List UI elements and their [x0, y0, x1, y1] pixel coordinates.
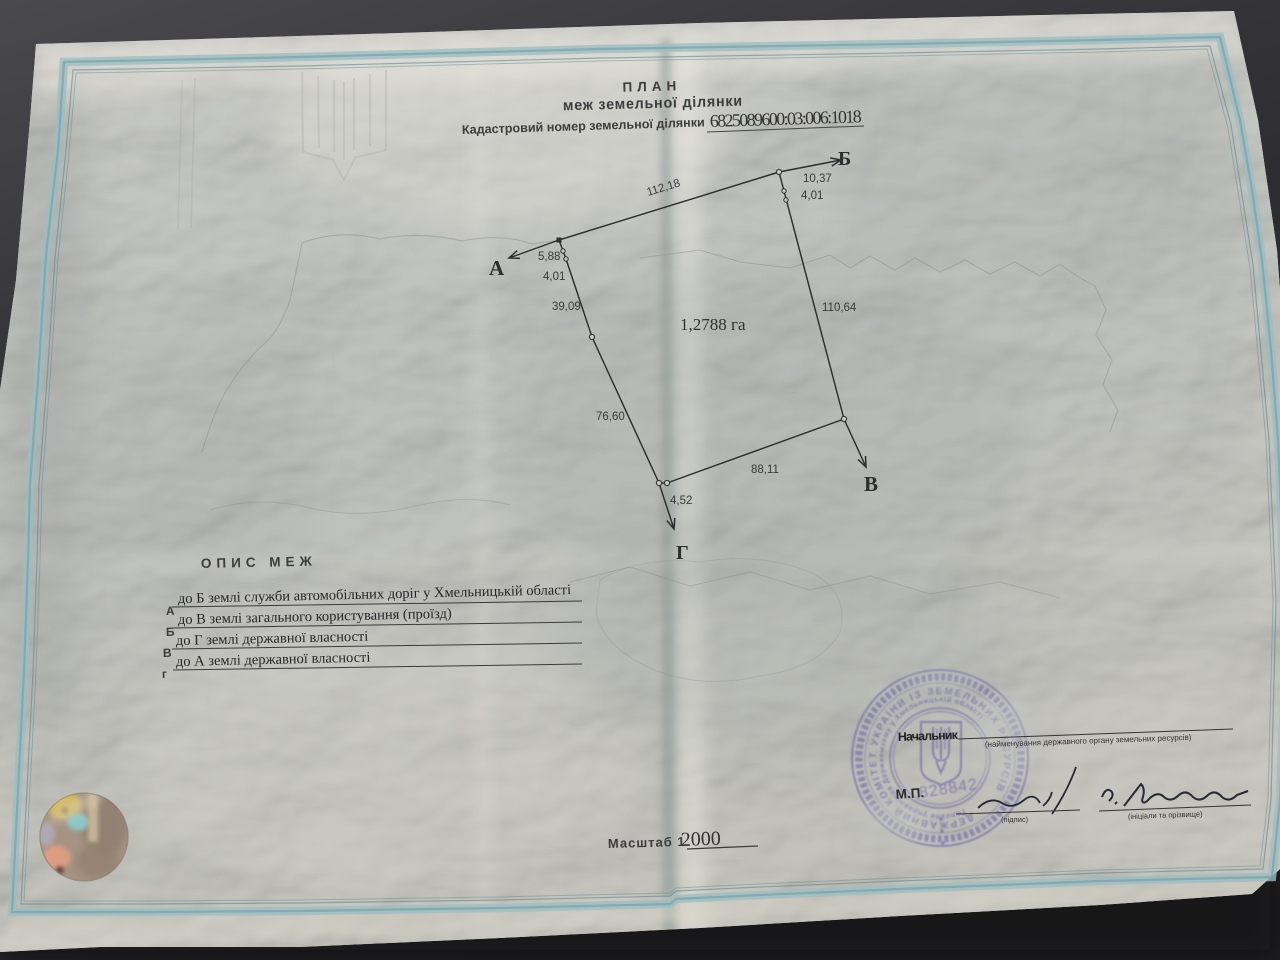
svg-text:4,52: 4,52 [670, 495, 692, 507]
svg-text:ОПИС МЕЖ: ОПИС МЕЖ [201, 554, 317, 571]
svg-text:Г: Г [676, 542, 689, 564]
svg-text:Масштаб 1: Масштаб 1 [608, 834, 686, 851]
svg-text:А: А [166, 604, 175, 618]
svg-text:110,64: 110,64 [822, 302, 857, 314]
svg-text:4,01: 4,01 [543, 271, 565, 283]
svg-text:4,01: 4,01 [801, 190, 823, 202]
svg-text:88,11: 88,11 [751, 464, 779, 476]
svg-text:(підпис): (підпис) [1001, 815, 1029, 824]
svg-text:Б: Б [166, 625, 175, 639]
svg-text:76,60: 76,60 [596, 411, 625, 423]
svg-text:М.П.: М.П. [895, 785, 924, 802]
svg-text:А: А [489, 256, 505, 280]
svg-text:Начальник: Начальник [898, 728, 959, 744]
svg-text:5,88: 5,88 [538, 251, 560, 263]
svg-text:1,2788 га: 1,2788 га [680, 315, 746, 334]
svg-text:ПЛАН: ПЛАН [622, 78, 681, 95]
svg-text:39,09: 39,09 [552, 301, 581, 313]
svg-text:В: В [163, 646, 172, 660]
svg-text:10,37: 10,37 [803, 173, 832, 185]
svg-text:Б: Б [838, 148, 851, 170]
svg-text:г: г [162, 667, 167, 681]
svg-text:В: В [864, 472, 878, 496]
